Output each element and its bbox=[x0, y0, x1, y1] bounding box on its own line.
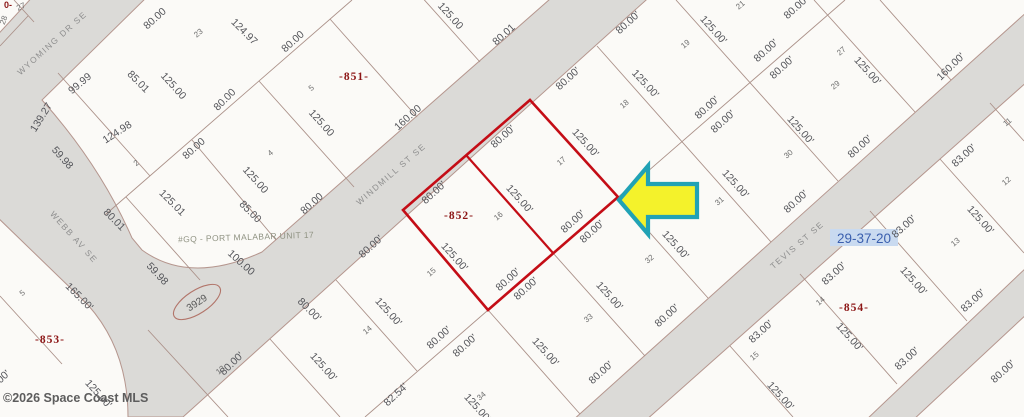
block-number-853: -853- bbox=[35, 334, 65, 346]
block-number-852: -852- bbox=[444, 210, 474, 222]
plat-map-image: WYOMING DR SE WINDMILL ST SE WEBB AV SE … bbox=[0, 0, 1024, 417]
corner-block-fragment: 0- bbox=[4, 0, 12, 10]
block-number-851: -851- bbox=[339, 71, 369, 83]
plat-map-canvas: WYOMING DR SE WINDMILL ST SE WEBB AV SE … bbox=[0, 0, 1024, 417]
block-number-854: -854- bbox=[839, 302, 869, 314]
watermark: ©2026 Space Coast MLS bbox=[3, 391, 148, 405]
section-township-range-label: 29-37-20 bbox=[837, 231, 891, 246]
